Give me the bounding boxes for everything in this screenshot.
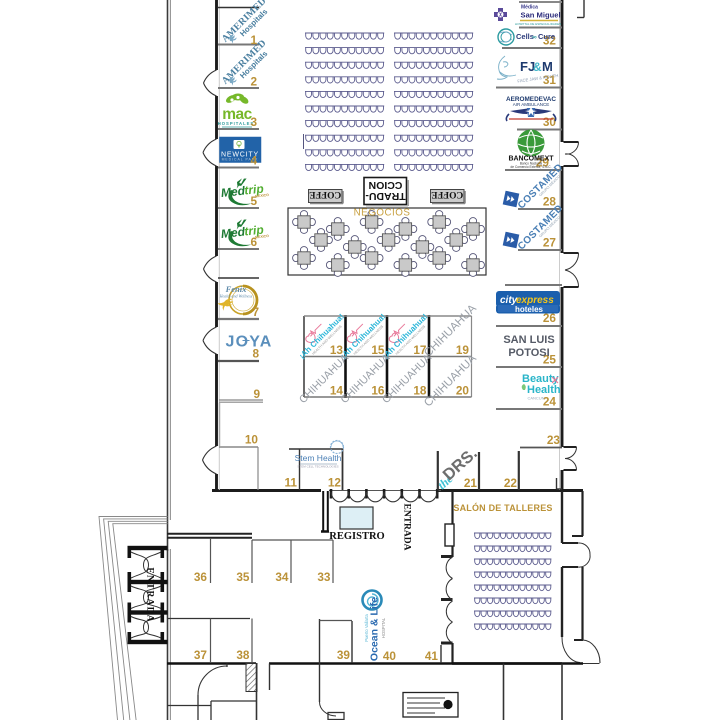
svg-text:M: M: [542, 59, 553, 74]
svg-text:40: 40: [383, 649, 397, 663]
svg-text:6: 6: [250, 235, 257, 249]
svg-text:10: 10: [245, 433, 259, 447]
svg-text:Med: Med: [220, 183, 246, 200]
svg-text:8: 8: [252, 347, 259, 361]
svg-text:COFFE: COFFE: [431, 189, 463, 199]
svg-text:Stem Health: Stem Health: [295, 453, 342, 463]
svg-text:COFFE: COFFE: [309, 189, 341, 199]
svg-text:Med: Med: [220, 224, 246, 241]
svg-text:35: 35: [236, 570, 250, 584]
svg-text:37: 37: [194, 648, 208, 662]
svg-text:5: 5: [250, 194, 257, 208]
svg-text:JOYA: JOYA: [226, 334, 273, 351]
svg-text:18: 18: [413, 384, 427, 398]
svg-text:24: 24: [543, 395, 557, 409]
svg-text:ENTRADA: ENTRADA: [145, 567, 155, 622]
svg-text:hoteles: hoteles: [515, 305, 544, 314]
svg-text:38: 38: [236, 648, 250, 662]
svg-text:POTOSI: POTOSI: [508, 347, 549, 359]
svg-text:Health and Wellness: Health and Wellness: [219, 294, 253, 299]
svg-text:NEGOCIOS: NEGOCIOS: [354, 208, 411, 219]
svg-text:16: 16: [371, 384, 385, 398]
svg-text:SALÓN DE TALLERES: SALÓN DE TALLERES: [453, 502, 552, 513]
svg-text:34: 34: [275, 570, 289, 584]
svg-text:20: 20: [456, 384, 470, 398]
svg-text:Fenix: Fenix: [225, 284, 248, 294]
svg-text:STEM CELL TECHNOLOGIES: STEM CELL TECHNOLOGIES: [297, 465, 338, 469]
svg-text:ENTRADA: ENTRADA: [402, 504, 412, 551]
svg-text:33: 33: [317, 570, 331, 584]
svg-text:HOSPITALES: HOSPITALES: [218, 121, 254, 126]
svg-text:39: 39: [337, 648, 351, 662]
svg-text:27: 27: [543, 236, 557, 250]
svg-text:CCION: CCION: [369, 179, 403, 191]
svg-text:13: 13: [330, 343, 344, 357]
svg-text:41: 41: [425, 649, 439, 663]
svg-text:de Comercio Exterior, S.N.C.: de Comercio Exterior, S.N.C.: [511, 165, 552, 169]
svg-text:23: 23: [547, 433, 561, 447]
svg-text:Health: Health: [527, 384, 561, 396]
svg-text:CHIHUAHUA: CHIHUAHUA: [422, 302, 479, 359]
svg-text:Puerto Vallarta: Puerto Vallarta: [364, 614, 369, 642]
svg-text:17: 17: [413, 343, 427, 357]
svg-text:AIR AMBULANCE: AIR AMBULANCE: [513, 102, 550, 107]
svg-text:SAN LUIS: SAN LUIS: [503, 334, 554, 346]
svg-text:7: 7: [252, 305, 259, 319]
svg-text:11: 11: [285, 476, 298, 490]
svg-text:15: 15: [371, 343, 385, 357]
svg-text:HOSPITAL DE ESPECIALIDADES: HOSPITAL DE ESPECIALIDADES: [515, 22, 561, 26]
svg-text:CANCUN: CANCUN: [527, 396, 544, 401]
svg-text:9: 9: [253, 387, 260, 401]
svg-text:4: 4: [250, 154, 257, 168]
svg-text:19: 19: [456, 343, 470, 357]
svg-text:3: 3: [250, 115, 257, 129]
svg-text:San Miguel: San Miguel: [521, 11, 561, 20]
svg-text:1: 1: [250, 33, 257, 47]
svg-text:Cure: Cure: [538, 32, 555, 41]
svg-text:12: 12: [328, 476, 342, 490]
svg-text:14: 14: [330, 384, 344, 398]
svg-text:21: 21: [464, 476, 478, 490]
svg-text:MEXICO: MEXICO: [255, 234, 269, 239]
svg-text:REGISTRO: REGISTRO: [329, 531, 384, 542]
svg-text:&: &: [533, 60, 542, 74]
svg-text:2: 2: [250, 75, 257, 89]
svg-text:HOSPITAL: HOSPITAL: [381, 617, 386, 638]
svg-text:Ocean & Life: Ocean & Life: [369, 597, 381, 661]
svg-text:∞: ∞: [532, 34, 537, 41]
svg-text:22: 22: [504, 476, 518, 490]
svg-text:36: 36: [194, 570, 208, 584]
svg-text:MEXICO: MEXICO: [255, 193, 269, 198]
